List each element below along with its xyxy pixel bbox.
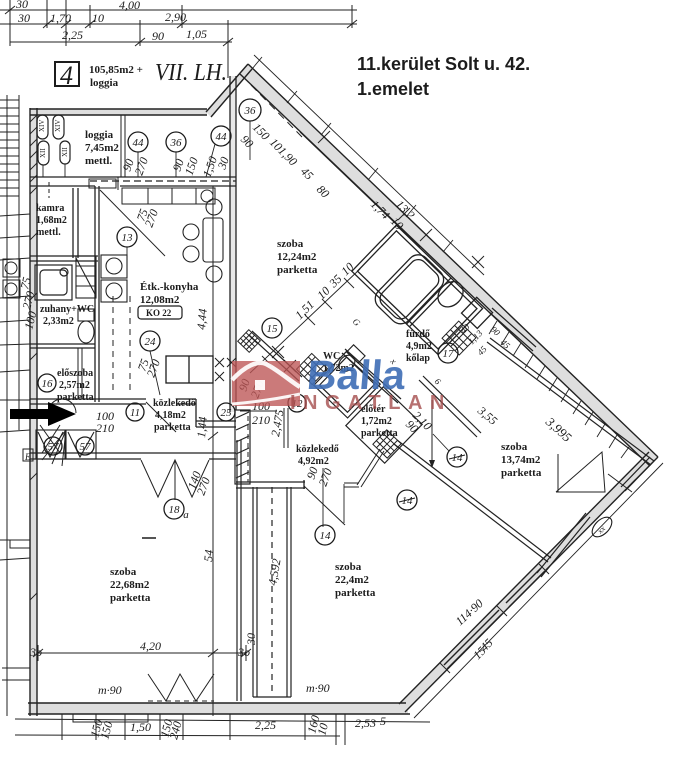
svg-text:10: 10 xyxy=(92,11,104,25)
svg-text:szoba: szoba xyxy=(110,566,137,578)
svg-text:XIV: XIV xyxy=(38,120,46,132)
svg-text:36: 36 xyxy=(170,137,183,149)
svg-text:m·90: m·90 xyxy=(306,681,330,695)
svg-text:4,92m2: 4,92m2 xyxy=(298,456,329,467)
svg-text:30: 30 xyxy=(244,633,258,646)
svg-text:XII: XII xyxy=(39,148,47,158)
svg-text:210: 210 xyxy=(252,413,270,427)
svg-text:kamra: kamra xyxy=(36,203,64,214)
svg-text:2,25: 2,25 xyxy=(62,28,83,42)
svg-text:22,68m2: 22,68m2 xyxy=(110,579,150,591)
svg-text:36: 36 xyxy=(244,105,257,117)
svg-text:57: 57 xyxy=(48,441,60,453)
svg-text:44: 44 xyxy=(216,131,228,143)
svg-text:1,50: 1,50 xyxy=(130,720,151,734)
svg-text:13: 13 xyxy=(122,232,134,244)
svg-text:parketta: parketta xyxy=(277,264,318,276)
svg-text:1,68m2: 1,68m2 xyxy=(36,215,67,226)
svg-text:4,20: 4,20 xyxy=(140,639,161,653)
svg-text:fürdő: fürdő xyxy=(406,329,430,340)
svg-text:E: E xyxy=(24,452,31,462)
svg-text:15: 15 xyxy=(267,323,279,335)
svg-text:90: 90 xyxy=(152,29,164,43)
svg-text:mettl.: mettl. xyxy=(36,227,61,238)
svg-text:szoba: szoba xyxy=(501,441,528,453)
svg-text:XIV: XIV xyxy=(54,120,62,132)
svg-text:2,25: 2,25 xyxy=(255,718,276,732)
svg-text:2,33m2: 2,33m2 xyxy=(43,316,74,327)
svg-text:1,70: 1,70 xyxy=(50,11,71,25)
svg-text:1.emelet: 1.emelet xyxy=(357,79,429,99)
svg-text:parketta: parketta xyxy=(57,392,94,403)
svg-text:1,05: 1,05 xyxy=(186,27,207,41)
svg-text:12,08m2: 12,08m2 xyxy=(140,294,180,306)
svg-text:m·90: m·90 xyxy=(98,683,122,697)
svg-text:előszoba: előszoba xyxy=(57,368,93,379)
svg-text:4,18m2: 4,18m2 xyxy=(155,410,186,421)
svg-text:VII. LH.: VII. LH. xyxy=(155,60,227,86)
svg-text:közlekedő: közlekedő xyxy=(153,398,196,409)
svg-text:2,57m2: 2,57m2 xyxy=(59,380,90,391)
svg-text:1,44: 1,44 xyxy=(194,416,210,438)
svg-text:54: 54 xyxy=(201,549,216,562)
svg-text:3o: 3o xyxy=(237,645,250,659)
svg-text:7,45m2: 7,45m2 xyxy=(85,142,119,154)
svg-text:30: 30 xyxy=(15,0,28,11)
svg-text:parketta: parketta xyxy=(335,587,376,599)
svg-text:1,72m2: 1,72m2 xyxy=(361,416,392,427)
svg-text:4,9m2: 4,9m2 xyxy=(406,341,432,352)
svg-text:Étk.-konyha: Étk.-konyha xyxy=(140,281,199,293)
svg-text:XII: XII xyxy=(61,147,69,157)
svg-text:16: 16 xyxy=(42,378,54,390)
svg-text:11.kerület Solt u. 42.: 11.kerület Solt u. 42. xyxy=(357,54,530,74)
svg-text:44: 44 xyxy=(133,137,145,149)
svg-text:loggia: loggia xyxy=(85,129,114,141)
svg-text:a: a xyxy=(183,509,189,521)
svg-text:parketta: parketta xyxy=(361,428,398,439)
svg-text:parketta: parketta xyxy=(154,422,191,433)
svg-text:KO 22: KO 22 xyxy=(146,308,172,318)
svg-text:parketta: parketta xyxy=(110,592,151,604)
svg-text:3o: 3o xyxy=(29,645,42,659)
svg-text:210: 210 xyxy=(96,421,114,435)
svg-text:22,4m2: 22,4m2 xyxy=(335,574,369,586)
svg-text:2,53: 2,53 xyxy=(355,716,376,730)
svg-text:4,00: 4,00 xyxy=(119,0,140,12)
svg-text:szoba: szoba xyxy=(335,561,362,573)
svg-text:parketta: parketta xyxy=(501,467,542,479)
svg-text:szoba: szoba xyxy=(277,238,304,250)
svg-text:14: 14 xyxy=(320,530,332,542)
svg-text:25: 25 xyxy=(221,407,233,419)
svg-text:5: 5 xyxy=(380,714,386,728)
svg-text:12,24m2: 12,24m2 xyxy=(277,251,317,263)
svg-text:zuhany+WC: zuhany+WC xyxy=(40,304,94,315)
svg-text:kőlap: kőlap xyxy=(406,353,430,364)
svg-text:11: 11 xyxy=(130,407,140,419)
svg-text:57: 57 xyxy=(80,441,92,453)
svg-text:közlekedő: közlekedő xyxy=(296,444,339,455)
svg-text:17: 17 xyxy=(443,348,455,360)
svg-text:13,74m2: 13,74m2 xyxy=(501,454,541,466)
svg-text:mettl.: mettl. xyxy=(85,155,112,167)
svg-text:2,90: 2,90 xyxy=(165,10,186,24)
svg-text:loggia: loggia xyxy=(90,77,119,89)
svg-text:4: 4 xyxy=(60,61,73,90)
svg-text:30: 30 xyxy=(17,11,30,25)
svg-text:INGATLAN: INGATLAN xyxy=(290,392,452,414)
svg-text:4,44: 4,44 xyxy=(194,308,210,330)
svg-text:18: 18 xyxy=(169,504,181,516)
svg-text:105,85m2 +: 105,85m2 + xyxy=(89,64,143,76)
svg-text:24: 24 xyxy=(145,336,157,348)
